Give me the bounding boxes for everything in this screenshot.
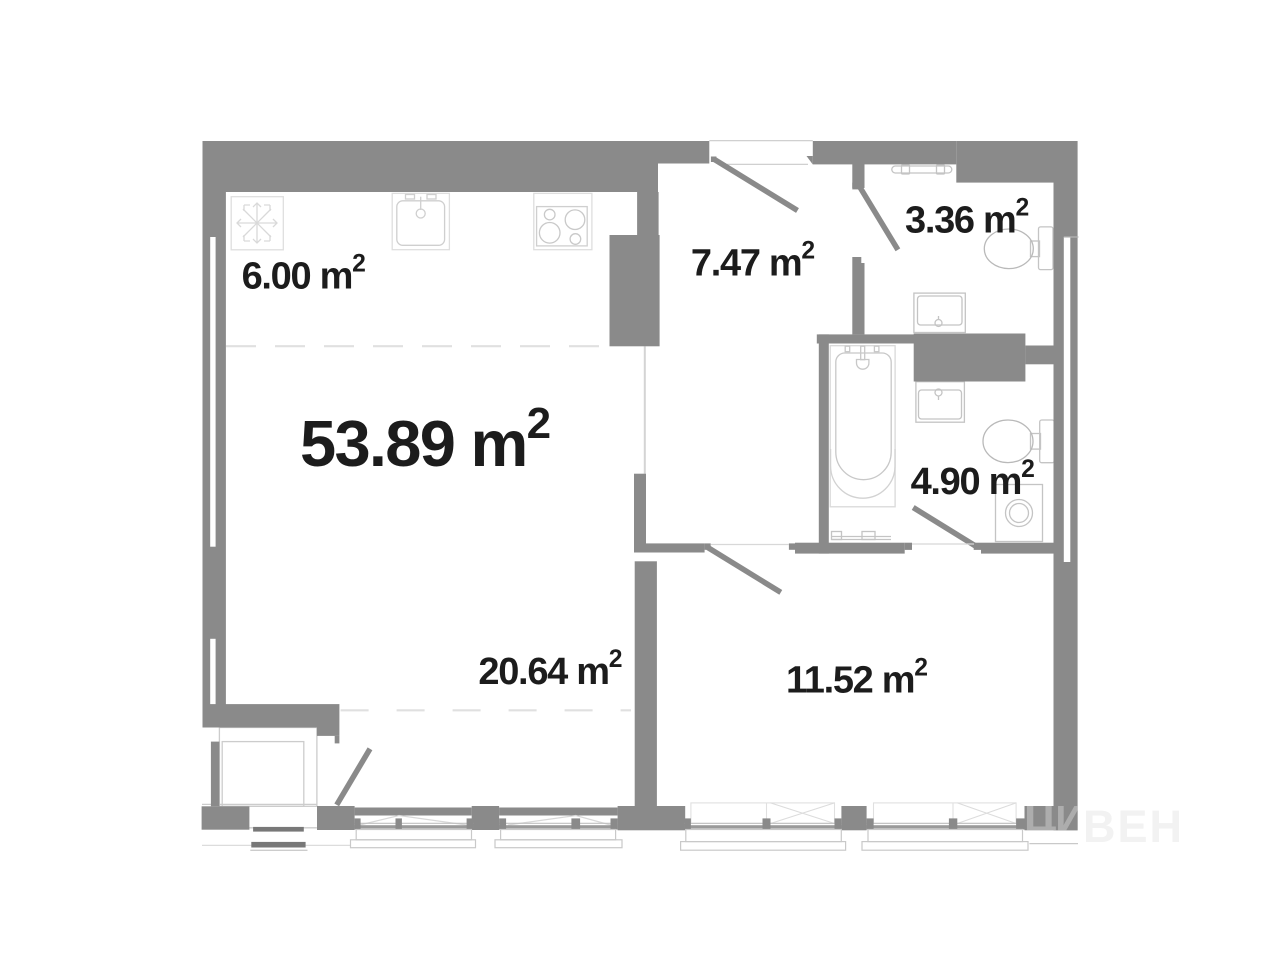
svg-text:11.52 m2: 11.52 m2 [786, 655, 928, 702]
svg-text:6.00 m2: 6.00 m2 [242, 251, 366, 298]
svg-text:ВЕН: ВЕН [1083, 801, 1184, 852]
svg-text:3.36 m2: 3.36 m2 [905, 195, 1029, 242]
svg-text:7.47 m2: 7.47 m2 [691, 237, 815, 284]
svg-text:53.89 m2: 53.89 m2 [300, 399, 551, 480]
svg-text:20.64 m2: 20.64 m2 [478, 646, 622, 693]
svg-text:4.90 m2: 4.90 m2 [911, 456, 1035, 503]
